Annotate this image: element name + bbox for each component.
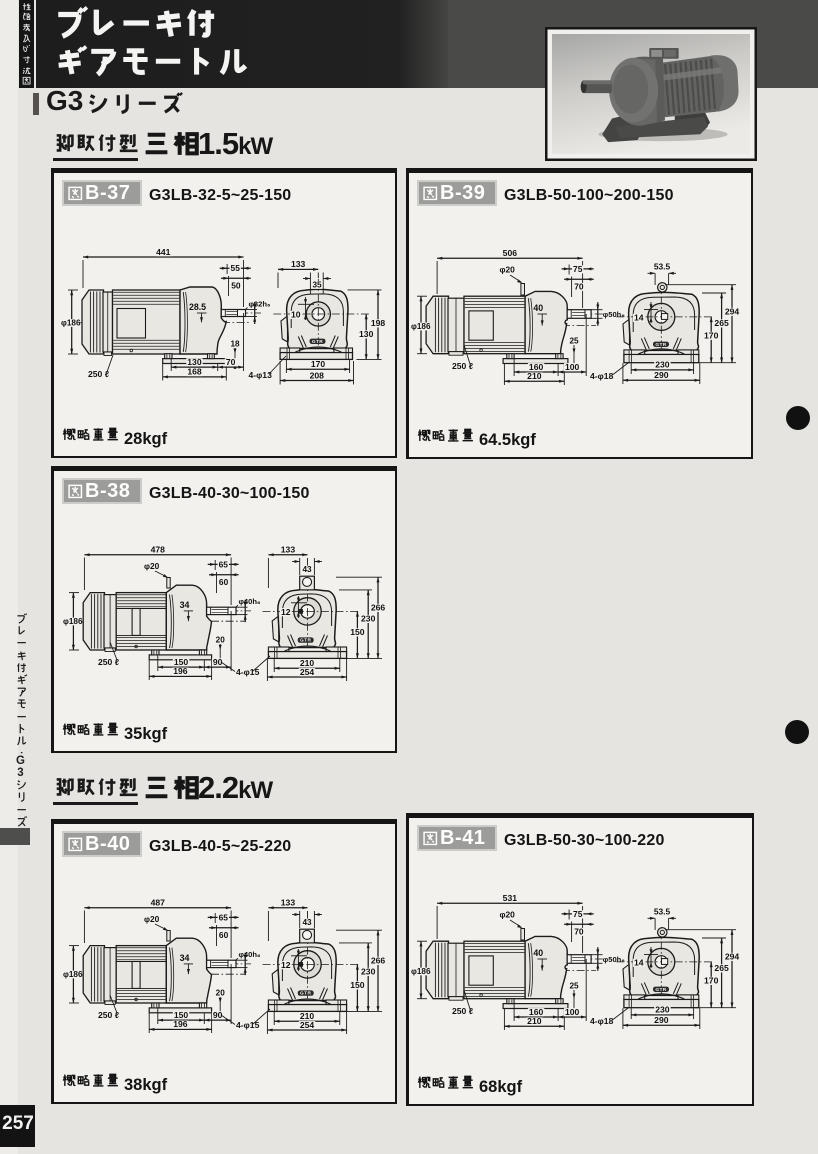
svg-text:266: 266 [371, 603, 386, 613]
svg-text:25: 25 [569, 337, 579, 346]
svg-text:294: 294 [725, 952, 740, 962]
svg-text:φ186: φ186 [411, 322, 431, 331]
svg-text:133: 133 [291, 259, 306, 269]
svg-text:φ20: φ20 [144, 914, 160, 924]
svg-text:487: 487 [151, 898, 166, 908]
svg-text:294: 294 [725, 307, 740, 317]
svg-text:170: 170 [704, 331, 719, 341]
svg-text:34: 34 [180, 953, 190, 963]
svg-text:34: 34 [180, 600, 190, 610]
svg-text:φ20: φ20 [500, 910, 516, 920]
svg-text:φ186: φ186 [63, 970, 83, 979]
svg-text:75: 75 [573, 264, 583, 274]
svg-text:70: 70 [574, 282, 584, 292]
svg-text:130: 130 [359, 329, 374, 339]
svg-text:φ20: φ20 [144, 561, 160, 571]
svg-text:70: 70 [574, 927, 584, 937]
svg-text:20: 20 [216, 636, 226, 645]
svg-text:290: 290 [654, 1015, 669, 1025]
svg-text:208: 208 [310, 370, 325, 380]
svg-text:265: 265 [714, 963, 729, 973]
svg-text:35: 35 [312, 281, 322, 290]
svg-text:GTR: GTR [655, 987, 666, 993]
svg-text:43: 43 [302, 918, 312, 927]
svg-text:18: 18 [230, 340, 240, 349]
svg-text:441: 441 [156, 247, 171, 257]
svg-text:290: 290 [654, 370, 669, 380]
svg-text:100: 100 [565, 362, 580, 372]
svg-text:GTR: GTR [655, 342, 666, 348]
svg-text:φ50h₆: φ50h₆ [603, 955, 626, 964]
svg-text:133: 133 [281, 898, 296, 908]
svg-text:14: 14 [634, 958, 644, 968]
svg-text:230: 230 [361, 967, 376, 977]
svg-text:170: 170 [311, 359, 326, 369]
svg-text:150: 150 [350, 980, 365, 990]
svg-text:196: 196 [173, 1019, 188, 1029]
svg-text:130: 130 [187, 357, 202, 367]
svg-text:506: 506 [503, 248, 518, 258]
svg-text:210: 210 [527, 371, 542, 381]
svg-text:478: 478 [151, 545, 166, 555]
svg-text:65: 65 [219, 913, 229, 923]
svg-text:196: 196 [173, 666, 188, 676]
svg-text:φ40h₆: φ40h₆ [239, 950, 262, 959]
svg-text:265: 265 [714, 318, 729, 328]
svg-text:230: 230 [655, 1005, 670, 1015]
svg-text:198: 198 [371, 318, 386, 328]
svg-text:257: 257 [2, 1113, 34, 1134]
svg-text:53.5: 53.5 [654, 262, 671, 272]
svg-text:φ50h₆: φ50h₆ [603, 310, 626, 319]
svg-text:4-φ18: 4-φ18 [590, 1016, 614, 1026]
svg-text:12: 12 [281, 960, 291, 970]
svg-text:12: 12 [281, 607, 291, 617]
svg-text:70: 70 [226, 357, 236, 367]
svg-text:75: 75 [573, 909, 583, 919]
svg-text:4-φ18: 4-φ18 [590, 371, 614, 381]
svg-text:168: 168 [187, 367, 202, 377]
svg-text:65: 65 [219, 560, 229, 570]
svg-text:254: 254 [300, 1020, 315, 1030]
svg-text:φ40h₆: φ40h₆ [239, 597, 262, 606]
svg-text:254: 254 [300, 667, 315, 677]
svg-text:170: 170 [704, 976, 719, 986]
svg-text:150: 150 [350, 627, 365, 637]
svg-text:250 ℓ: 250 ℓ [88, 369, 109, 379]
svg-text:25: 25 [569, 982, 579, 991]
svg-text:14: 14 [634, 313, 644, 323]
svg-text:φ186: φ186 [61, 319, 81, 328]
svg-text:210: 210 [527, 1016, 542, 1026]
svg-text:40: 40 [533, 303, 543, 313]
svg-text:4-φ13: 4-φ13 [249, 370, 273, 380]
svg-text:φ186: φ186 [411, 967, 431, 976]
svg-text:60: 60 [219, 930, 229, 940]
svg-text:55: 55 [231, 263, 241, 273]
svg-text:20: 20 [216, 989, 226, 998]
svg-text:φ32h₆: φ32h₆ [249, 300, 272, 309]
svg-text:10: 10 [291, 310, 301, 320]
svg-text:230: 230 [361, 614, 376, 624]
svg-text:266: 266 [371, 956, 386, 966]
svg-text:43: 43 [302, 565, 312, 574]
svg-text:133: 133 [281, 545, 296, 555]
svg-text:250 ℓ: 250 ℓ [98, 657, 119, 667]
svg-text:GTR: GTR [312, 339, 323, 345]
svg-text:60: 60 [219, 577, 229, 587]
svg-text:28.5: 28.5 [189, 302, 206, 312]
svg-text:40: 40 [533, 948, 543, 958]
svg-text:GTR: GTR [300, 991, 311, 997]
svg-text:φ20: φ20 [500, 265, 516, 275]
svg-text:230: 230 [655, 360, 670, 370]
svg-text:100: 100 [565, 1007, 580, 1017]
svg-text:53.5: 53.5 [654, 907, 671, 917]
svg-text:φ186: φ186 [63, 617, 83, 626]
svg-text:50: 50 [231, 280, 241, 290]
svg-text:531: 531 [503, 893, 518, 903]
svg-text:250 ℓ: 250 ℓ [98, 1010, 119, 1020]
svg-text:GTR: GTR [300, 638, 311, 644]
